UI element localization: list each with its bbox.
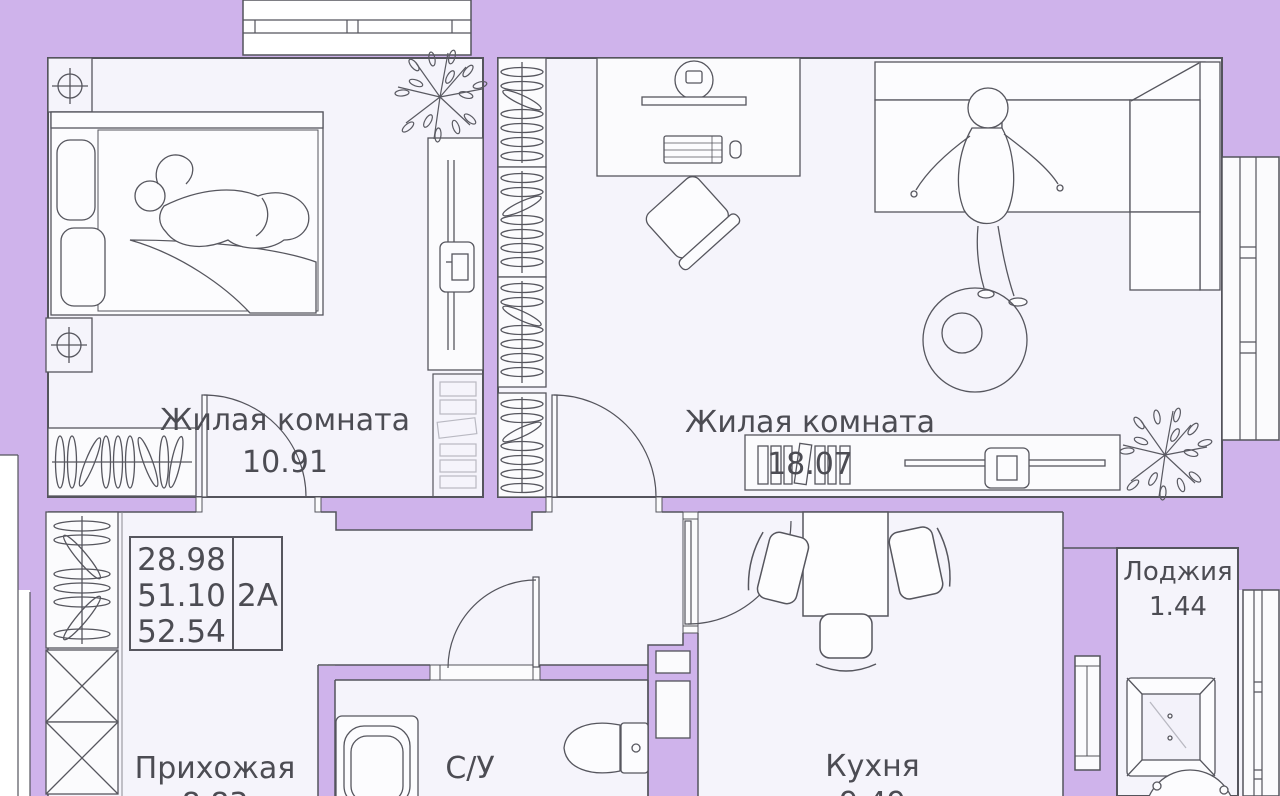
upper-balcony (243, 0, 471, 55)
armchair (1127, 678, 1215, 776)
floor-plan-drawing (0, 0, 1280, 796)
balcony-door (1075, 656, 1100, 770)
info-total-area: 52.54 (132, 615, 231, 649)
wall-marker-icon (46, 318, 92, 372)
hallway-area-partial: 8.83 (130, 788, 300, 796)
living-area: 18.07 (640, 448, 980, 481)
hallway-label: Прихожая (130, 752, 300, 785)
wall-marker-icon (48, 58, 92, 112)
bed (51, 112, 323, 315)
window-loggia (1243, 590, 1279, 796)
storage-box (46, 722, 118, 794)
info-area-no-loggia: 51.10 (132, 579, 231, 613)
kitchen-area-partial: 9.49 (790, 787, 955, 796)
loggia-area: 1.44 (1119, 593, 1237, 622)
wardrobe-hall (46, 512, 118, 648)
living-label: Жилая комната (640, 406, 980, 439)
bathtub (336, 716, 418, 796)
window-right (1222, 157, 1279, 440)
loggia-label: Лоджия (1119, 558, 1237, 587)
bedroom-area: 10.91 (110, 446, 460, 479)
vent-shaft (656, 651, 690, 738)
tv-unit-bedroom (428, 138, 483, 370)
mouse-icon (730, 141, 741, 158)
info-unit-label: 2А (233, 579, 282, 613)
keyboard-icon (664, 136, 722, 163)
bathroom-label: С/У (420, 752, 520, 785)
kitchen-furniture (743, 512, 955, 671)
info-living-area: 28.98 (132, 543, 231, 577)
storage-box (46, 650, 118, 722)
kitchen-label: Кухня (790, 750, 955, 783)
wardrobe-living (498, 58, 546, 497)
chair (887, 523, 954, 601)
bedroom-label: Жилая комната (110, 404, 460, 437)
kitchen-table (803, 512, 888, 616)
desk (597, 58, 800, 176)
chair (816, 614, 876, 671)
door-bathroom (430, 577, 540, 680)
floor-plan: Жилая комната 10.91 Жилая комната 18.07 … (0, 0, 1280, 796)
chair (743, 527, 810, 606)
toilet (564, 723, 648, 773)
